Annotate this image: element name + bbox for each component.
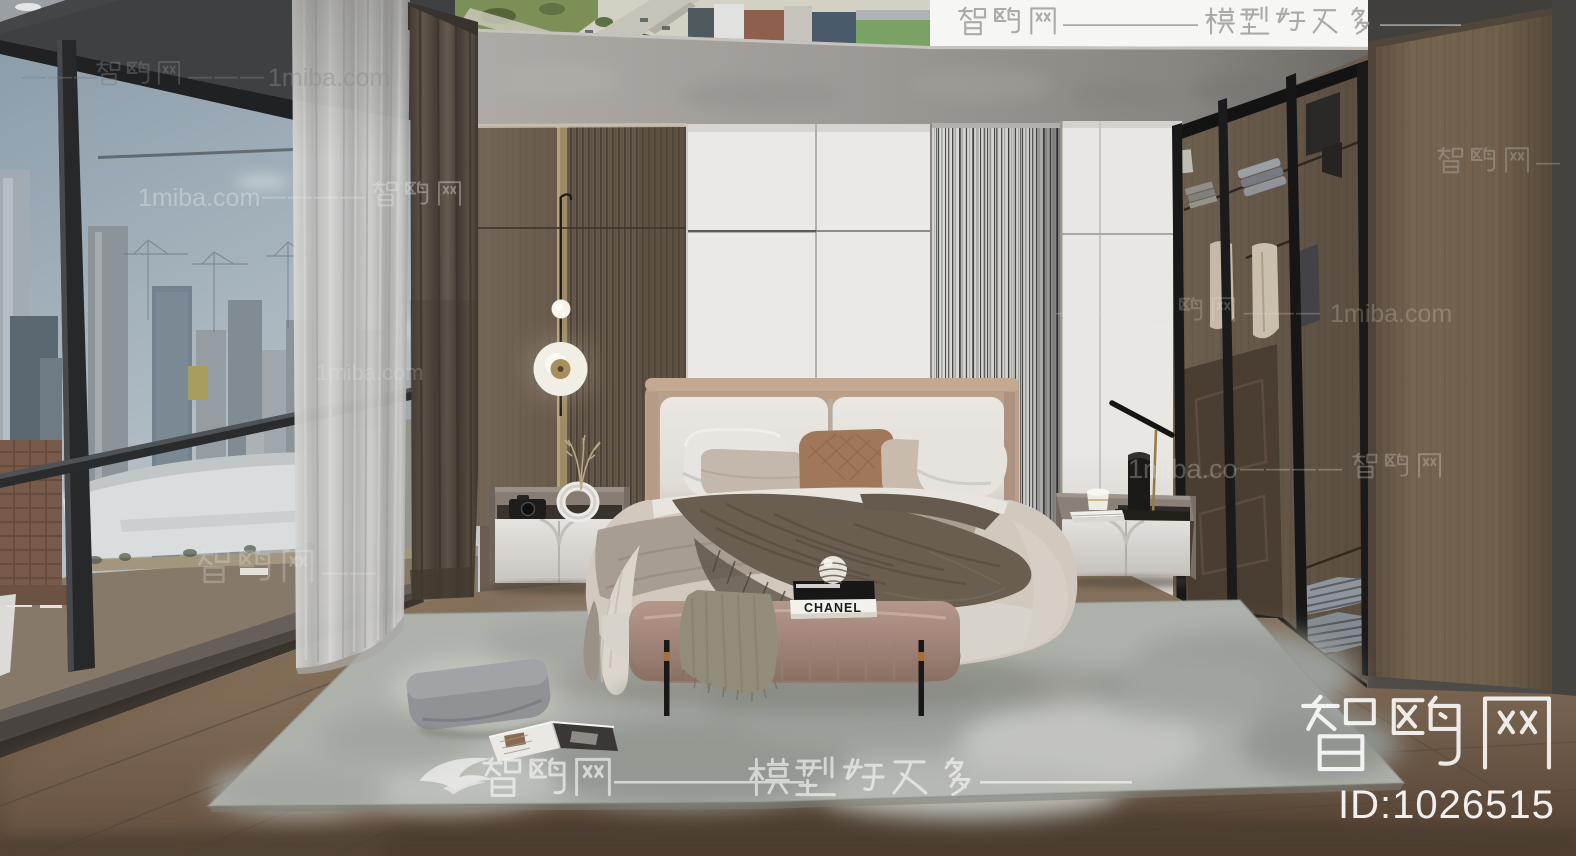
svg-text:CHANEL: CHANEL bbox=[804, 601, 862, 615]
svg-text:————: ———— bbox=[262, 183, 366, 210]
svg-text:1miba.com: 1miba.com bbox=[268, 64, 390, 92]
svg-text:1miba.com: 1miba.com bbox=[138, 184, 260, 212]
svg-text:1miba.co: 1miba.co bbox=[1128, 454, 1238, 484]
svg-text:1miba.com: 1miba.com bbox=[1330, 300, 1452, 328]
svg-text:———: ——— bbox=[1056, 299, 1134, 326]
svg-text:———: ——— bbox=[1380, 8, 1461, 38]
svg-text:———: ——— bbox=[188, 63, 266, 90]
svg-text:————: ———— bbox=[1240, 455, 1344, 482]
svg-text:—: — bbox=[1536, 149, 1562, 176]
svg-text:ID:1026515: ID:1026515 bbox=[1338, 783, 1555, 827]
svg-text:1miba.com: 1miba.com bbox=[316, 360, 424, 385]
svg-text:—————: ————— bbox=[1063, 8, 1198, 38]
svg-text:———: ——— bbox=[22, 63, 100, 90]
svg-text:———: ——— bbox=[1244, 299, 1322, 326]
svg-text:——: —— bbox=[322, 556, 378, 586]
svg-text:————: ———— bbox=[980, 759, 1132, 801]
